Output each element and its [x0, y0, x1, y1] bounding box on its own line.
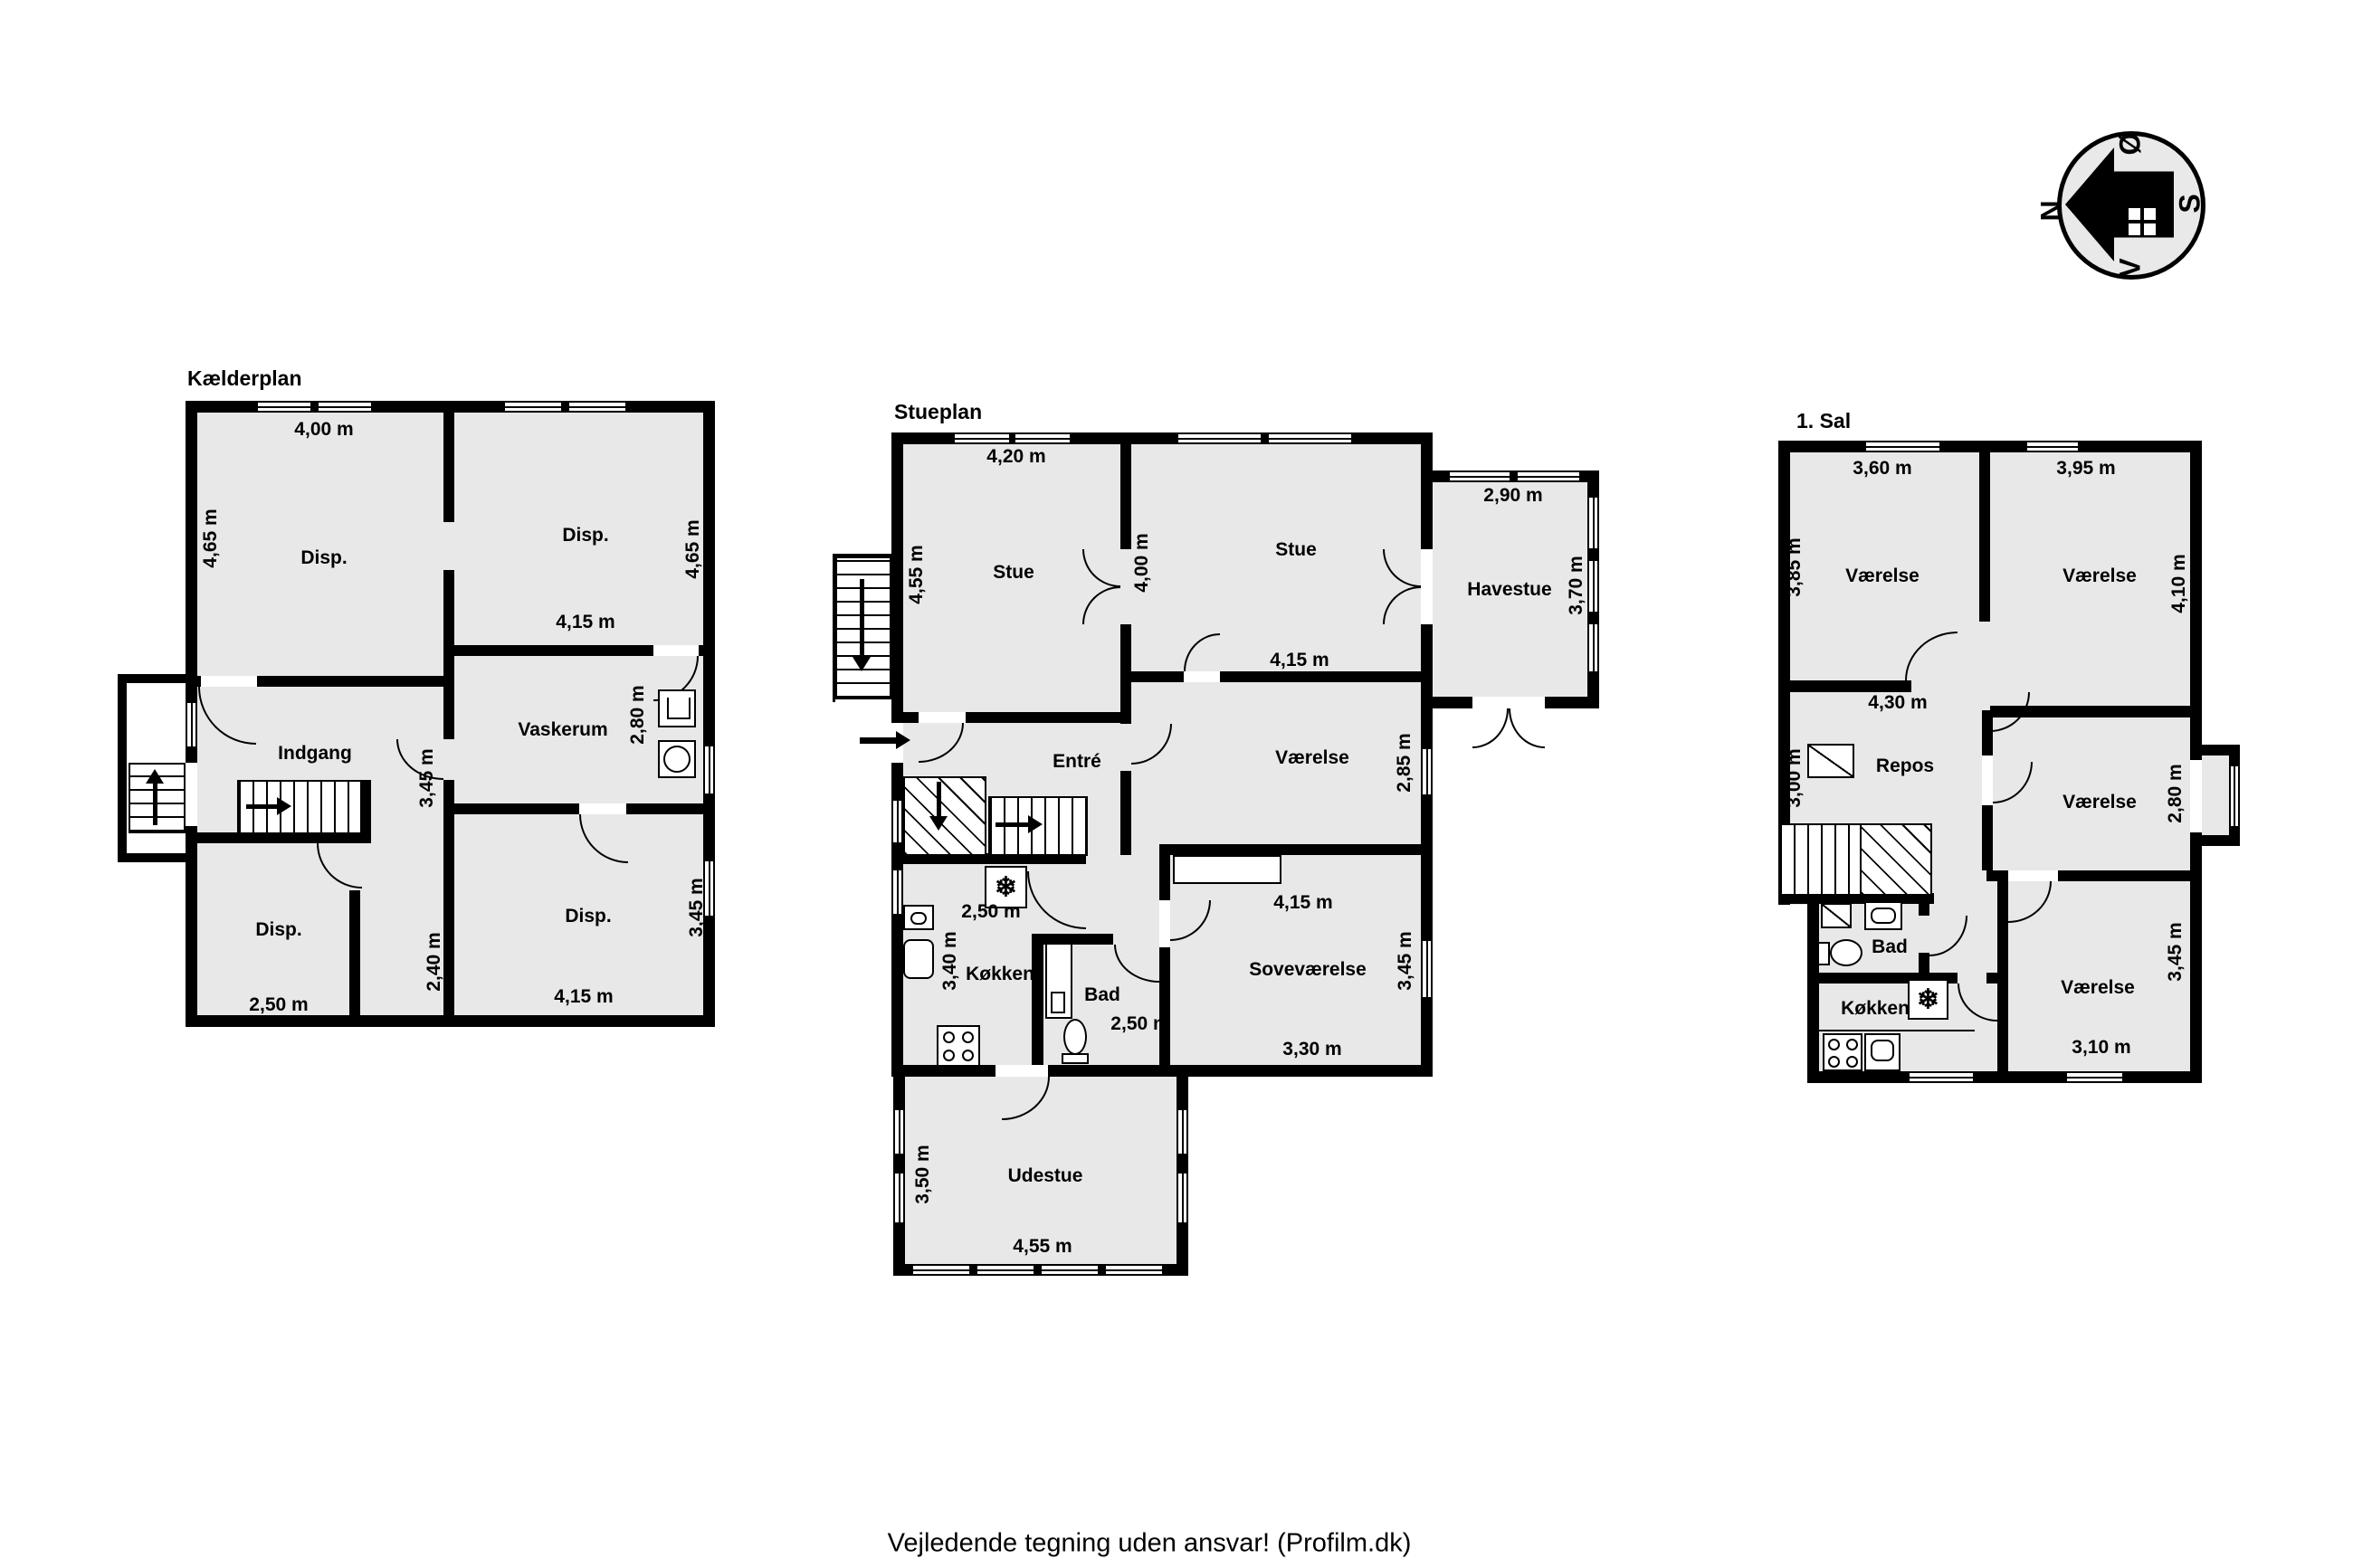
compass-east-label: Ø — [2114, 133, 2148, 156]
compass: N Ø S V — [0, 0, 2353, 1568]
compass-house-window — [2129, 208, 2156, 235]
compass-west-label: V — [2114, 258, 2148, 277]
floorplan-canvas: Kælderplan — [0, 0, 2353, 1568]
compass-north-label: N — [2035, 200, 2069, 221]
disclaimer-text: Vejledende tegning uden ansvar! (Profilm… — [888, 1529, 1412, 1559]
compass-south-label: S — [2174, 194, 2207, 213]
